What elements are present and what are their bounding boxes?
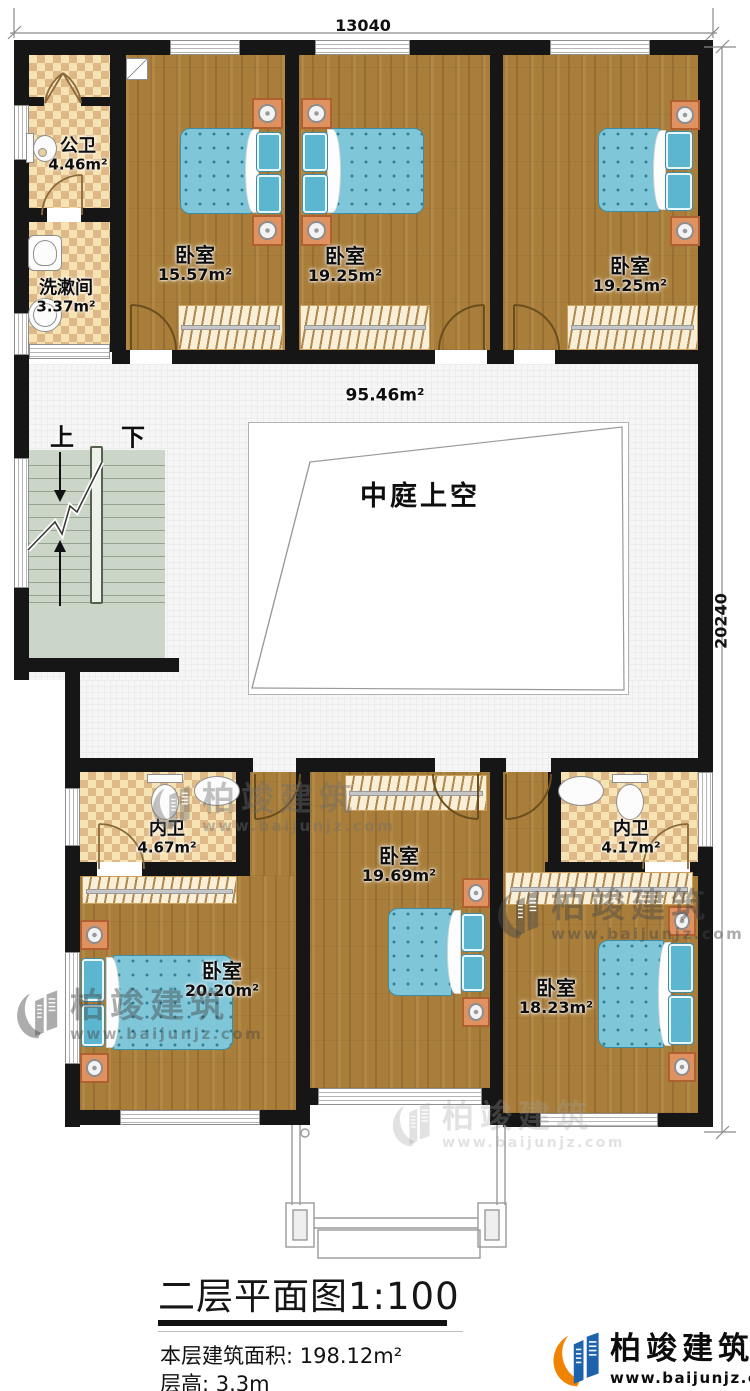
label-bedroom-s: 卧室 19.69m²	[362, 845, 436, 885]
label-bedroom-ne: 卧室 19.25m²	[593, 255, 667, 295]
brand-footer: 柏竣建筑 www.baijunjz.com	[550, 1330, 750, 1390]
label-washroom: 洗漱间 3.37m²	[36, 279, 95, 316]
label-bedroom-n: 卧室 19.25m²	[308, 245, 382, 285]
dimension-right-label: 20240	[712, 593, 731, 649]
dimension-lines	[8, 8, 736, 1139]
door-public-bath	[45, 73, 81, 103]
stair-break-casing	[28, 462, 102, 550]
title-underline-thin	[158, 1331, 463, 1332]
label-bedroom-se: 卧室 18.23m²	[519, 977, 593, 1017]
floor-area-line: 本层建筑面积: 198.12m²	[160, 1340, 402, 1370]
brand-url: www.baijunjz.com	[610, 1371, 750, 1386]
label-bath-sw: 内卫 4.67m²	[137, 820, 196, 857]
dimension-top-label: 13040	[335, 16, 391, 35]
label-bedroom-nw: 卧室 15.57m²	[158, 244, 232, 284]
floor-plan: 中庭上空 95.46m² 上 下	[0, 0, 750, 1391]
plan-linework	[0, 0, 750, 1391]
brand-name: 柏竣建筑	[610, 1334, 750, 1365]
door-bedroom-nw	[131, 305, 176, 350]
label-bath-se: 内卫 4.17m²	[601, 820, 660, 857]
door-bedroom-se	[506, 774, 551, 819]
label-bedroom-sw: 卧室 20.20m²	[185, 960, 259, 1000]
door-bedroom-n	[439, 305, 484, 350]
plan-title: 二层平面图1:100	[158, 1266, 460, 1320]
title-underline	[158, 1320, 447, 1326]
plan-title-text: 二层平面图	[158, 1275, 348, 1318]
door-bedroom-s	[433, 774, 478, 819]
door-bedroom-ne	[514, 305, 559, 350]
plan-title-scale: 1:100	[348, 1275, 460, 1318]
label-public-bath: 公卫 4.46m²	[48, 137, 107, 174]
door-bedroom-sw	[255, 774, 300, 819]
door-washroom-divider	[42, 175, 82, 215]
floor-height-line: 层高: 3.3m	[160, 1368, 270, 1391]
porch	[286, 1125, 506, 1258]
brand-logo-icon	[550, 1330, 604, 1390]
